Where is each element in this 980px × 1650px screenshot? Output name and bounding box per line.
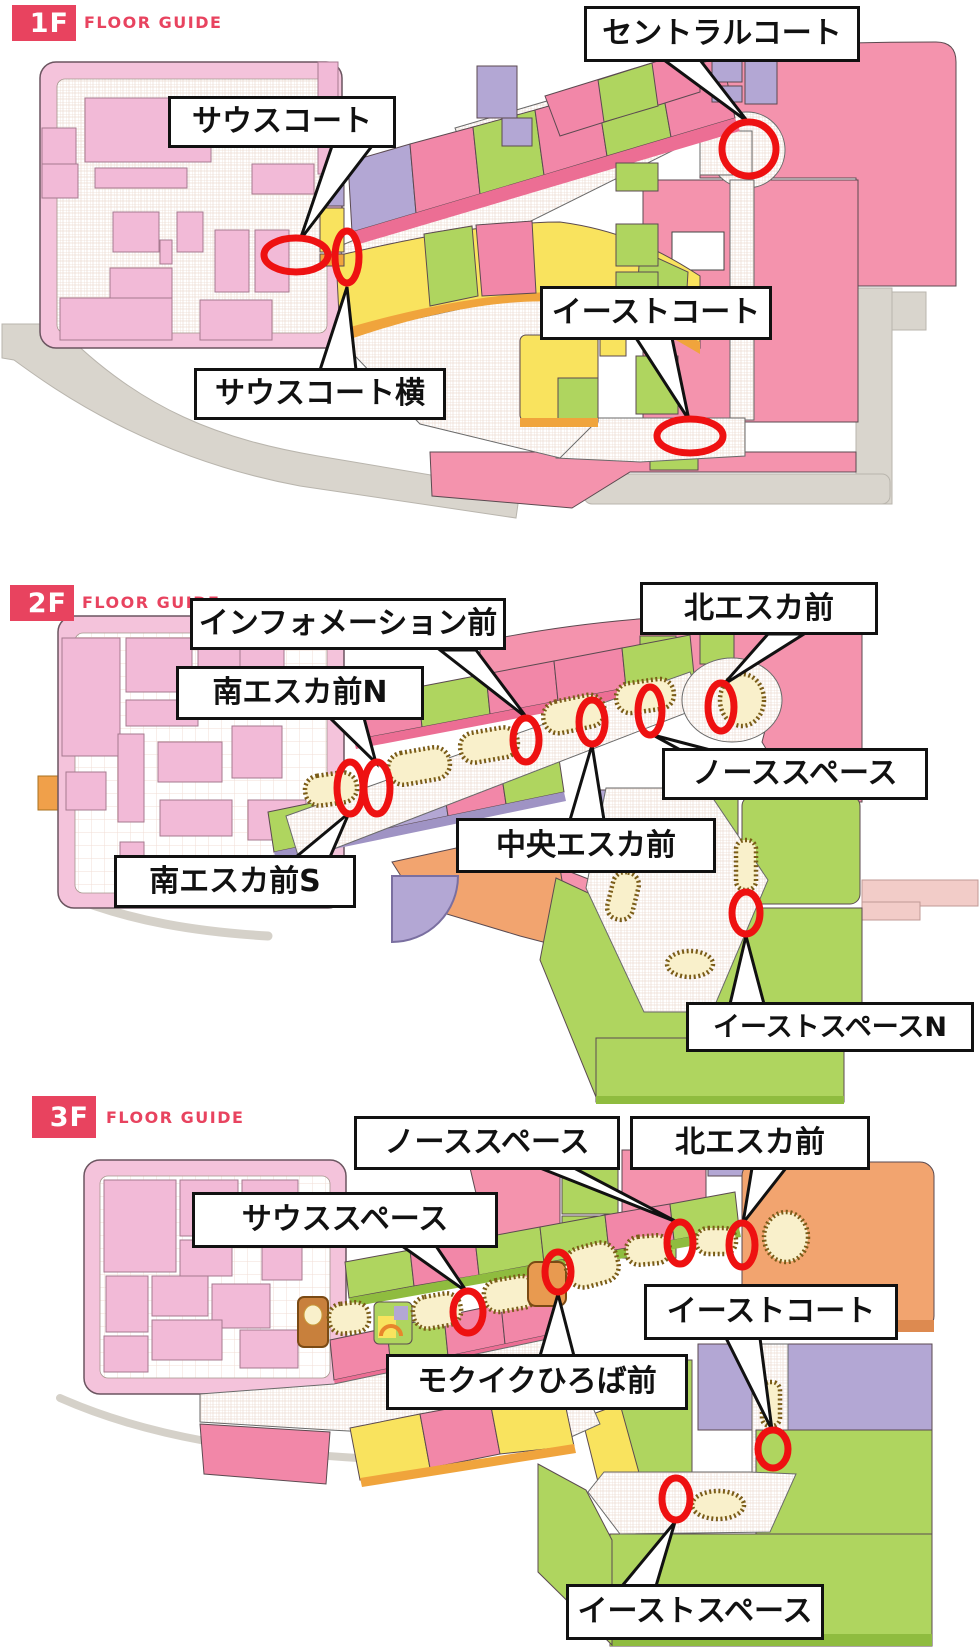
callout-2f-east-space-n: イーストスペースN (686, 1002, 974, 1052)
callout-1f-central-court: セントラルコート (584, 6, 860, 62)
callout-2f-information-front: インフォメーション前 (190, 598, 506, 650)
callout-2f-central-esca: 中央エスカ前 (456, 818, 716, 873)
road-1f-bottom (584, 474, 890, 504)
callout-3f-mokuiku: モクイクひろば前 (386, 1354, 688, 1410)
callout-3f-east-space: イーストスペース (566, 1584, 824, 1640)
callout-1f-east-court: イーストコート (540, 286, 772, 340)
floor-guide-page: 1F FLOOR GUIDE 2F FLOOR GUIDE 3F FLOOR G… (0, 0, 980, 1650)
region-2f-purple-fan (392, 876, 458, 942)
road-1f-step (892, 292, 926, 330)
floor-badge-2f: 2F (10, 585, 74, 621)
floor-map-1f (2, 42, 956, 518)
callout-1f-south-court: サウスコート (168, 96, 396, 148)
floor-guide-label-1f: FLOOR GUIDE (84, 13, 222, 32)
region-3f-purple (698, 1344, 932, 1430)
callout-2f-north-space: ノーススペース (662, 748, 928, 800)
callout-3f-north-space: ノーススペース (354, 1116, 620, 1170)
floor-badge-3f: 3F (32, 1096, 96, 1138)
callout-2f-north-esca: 北エスカ前 (640, 582, 878, 635)
callout-1f-south-court-side: サウスコート横 (194, 368, 446, 420)
callout-3f-north-esca: 北エスカ前 (630, 1116, 870, 1170)
playground-3f (374, 1302, 412, 1344)
road-1f-east (856, 288, 892, 504)
callout-3f-south-space: サウススペース (192, 1192, 498, 1248)
floor-badge-1f: 1F (12, 5, 76, 41)
floor-guide-label-3f: FLOOR GUIDE (106, 1108, 244, 1127)
callout-3f-east-court: イーストコート (644, 1284, 898, 1340)
callout-2f-south-esca-n: 南エスカ前N (176, 666, 424, 720)
callout-2f-south-esca-s: 南エスカ前S (114, 855, 356, 908)
